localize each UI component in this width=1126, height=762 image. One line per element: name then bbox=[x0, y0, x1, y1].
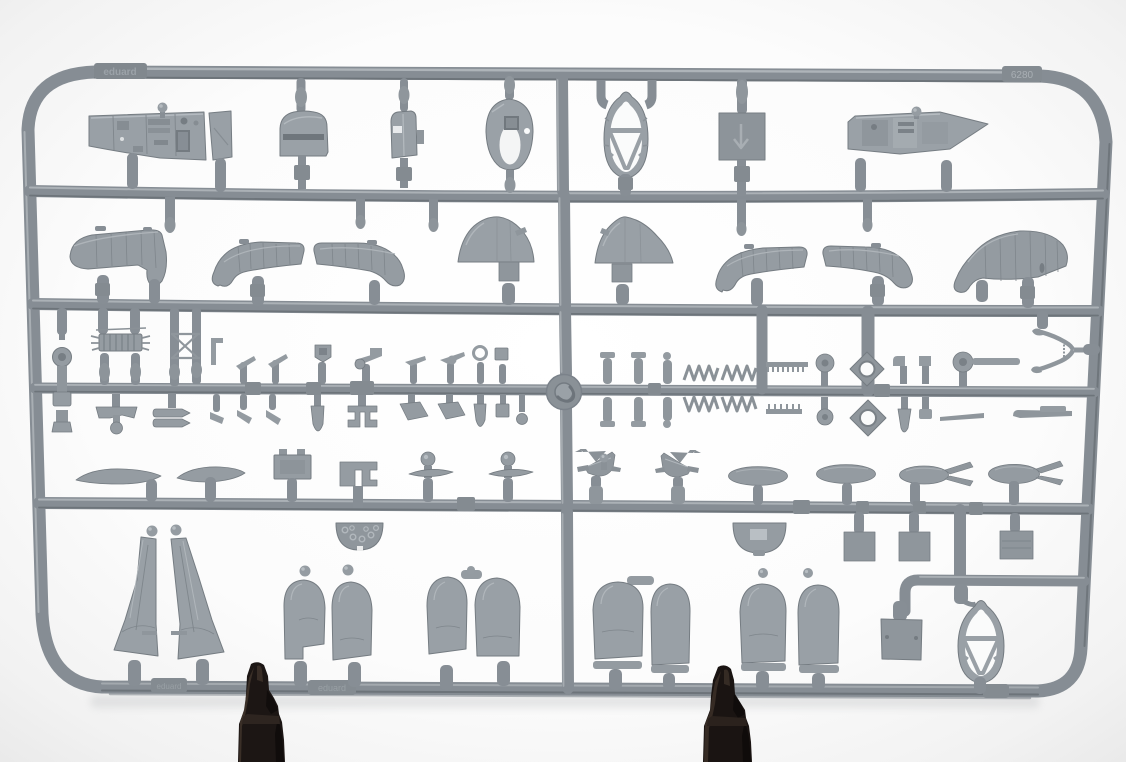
svg-text:eduard: eduard bbox=[157, 682, 182, 691]
svg-text:eduard: eduard bbox=[318, 683, 346, 693]
svg-text:eduard: eduard bbox=[103, 67, 136, 78]
svg-text:6280: 6280 bbox=[1011, 70, 1034, 81]
